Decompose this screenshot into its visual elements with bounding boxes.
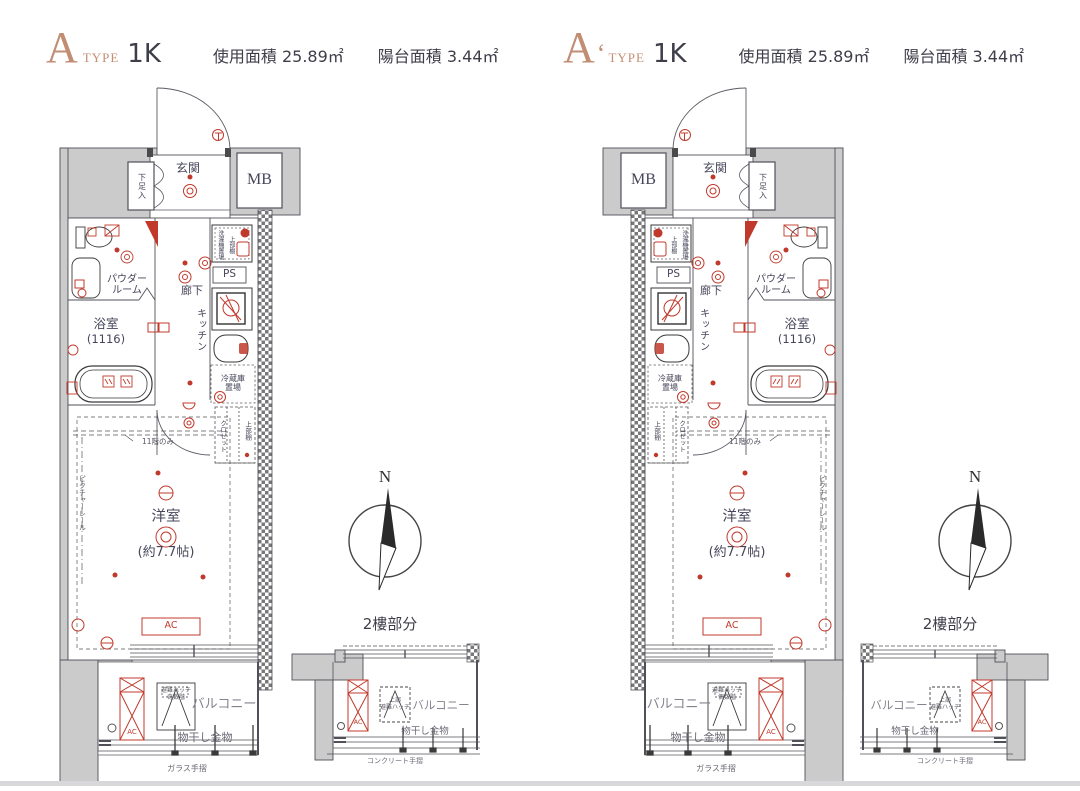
- ac-outdoor-unit: [348, 680, 368, 731]
- kitchen-sink: [655, 335, 689, 362]
- north-label: N: [330, 468, 440, 486]
- second-floor-title: 2樓部分: [285, 614, 495, 634]
- pipe-space-box: [657, 267, 690, 283]
- second-floor-drawing: [285, 642, 495, 782]
- entrance-floor: [673, 155, 753, 225]
- compass: N: [330, 468, 440, 593]
- second-floor-drawing: [845, 642, 1055, 782]
- compass-needle-north: [971, 488, 986, 548]
- compass-drawing: [920, 486, 1030, 593]
- balcony-area: 陽台面積 3.44㎡: [903, 43, 1024, 67]
- plan-layout: 1K: [653, 39, 687, 69]
- door-jamb: [750, 148, 756, 157]
- plan-letter: A: [563, 26, 595, 70]
- entrance-floor: [150, 155, 230, 225]
- washer-place: [212, 225, 252, 262]
- plan-type-label: TYPE: [608, 50, 645, 66]
- second-floor-section-a-prime: 2樓部分 上部避難ハッチ バルコニー 物干し金物 コンクリート手摺 AC: [845, 612, 1055, 782]
- compass-needle-south: [379, 543, 396, 590]
- meter-box-room: [621, 153, 666, 208]
- compass-needle-north: [381, 488, 396, 548]
- second-floor-section-a: 2樓部分 上部避難ハッチ バルコニー 物干し金物 コンクリート手摺 AC: [285, 612, 495, 782]
- north-label: N: [920, 468, 1030, 486]
- ac-outdoor-unit: [759, 678, 783, 740]
- kitchen-sink: [214, 335, 248, 362]
- floorplan-page: A TYPE 1K 使用面積 25.89㎡ 陽台面積 3.44㎡ A ‘ TYP…: [0, 0, 1080, 791]
- laundry-poles: [400, 728, 466, 752]
- wall-hatch: [467, 644, 479, 662]
- plan-prime: ‘: [597, 39, 606, 69]
- meter-box-room: [237, 153, 282, 208]
- evacuation-hatch: [930, 687, 960, 722]
- neighbor-wall-hatch: [631, 210, 645, 690]
- plan-title-a-prime: A ‘ TYPE 1K 使用面積 25.89㎡ 陽台面積 3.44㎡: [563, 26, 1024, 70]
- usage-area: 使用面積 25.89㎡: [739, 43, 870, 67]
- compass-needle-south: [969, 543, 986, 590]
- shoe-box-room: [128, 162, 154, 210]
- usage-area: 使用面積 25.89㎡: [213, 43, 344, 67]
- balcony-area: 陽台面積 3.44㎡: [378, 43, 499, 67]
- plan-layout: 1K: [127, 39, 161, 69]
- plan-title-a: A TYPE 1K 使用面積 25.89㎡ 陽台面積 3.44㎡: [46, 26, 499, 70]
- compass-drawing: [330, 486, 440, 593]
- evacuation-hatch: [380, 687, 410, 722]
- floorplan-a-prime: 玄関 MB 下足入 パウダールーム 浴室 (1116) 廊下 キッチン PS 洗…: [578, 85, 848, 785]
- neighbor-wall-hatch: [258, 210, 272, 690]
- plan-letter: A: [46, 26, 78, 70]
- stove: [212, 288, 252, 330]
- bottom-divider: [0, 781, 1080, 786]
- pipe-space-box: [213, 267, 246, 283]
- laundry-poles: [874, 728, 940, 752]
- ac-box: [703, 618, 761, 635]
- stove: [651, 288, 691, 330]
- second-floor-title: 2樓部分: [845, 614, 1055, 634]
- unit-interior: [68, 218, 258, 660]
- evacuation-hatch: [157, 683, 195, 730]
- wall-hatch: [861, 644, 873, 662]
- door-jamb: [147, 148, 153, 157]
- compass: N: [920, 468, 1030, 593]
- unit-interior: [645, 218, 835, 660]
- evacuation-hatch: [708, 683, 746, 730]
- ac-box: [142, 618, 200, 635]
- ac-outdoor-unit: [120, 678, 144, 740]
- ac-outdoor-unit: [972, 680, 992, 731]
- floorplan-drawing: [578, 85, 848, 785]
- plan-type-label: TYPE: [83, 50, 120, 66]
- shoe-box-room: [749, 162, 775, 210]
- washer-place: [651, 225, 691, 262]
